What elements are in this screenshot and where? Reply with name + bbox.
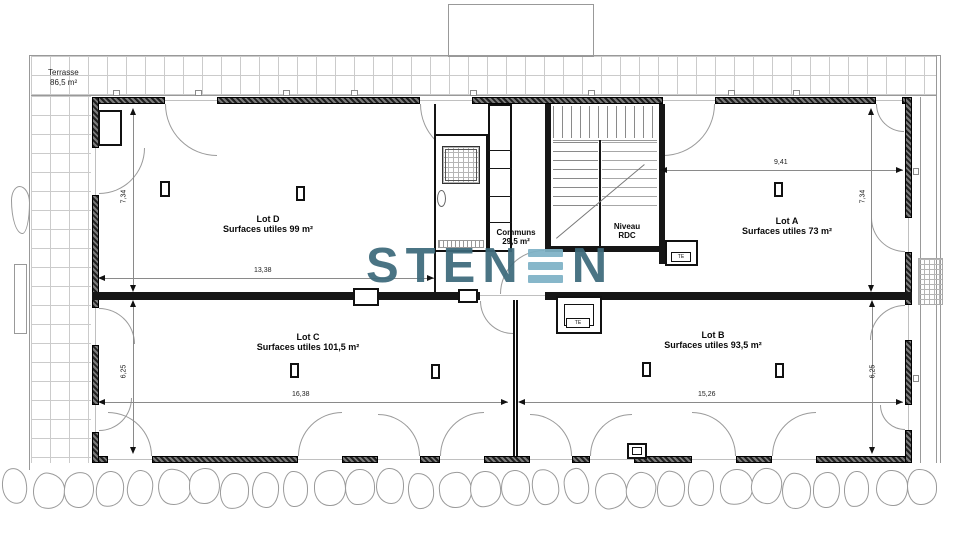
shaft-divider bbox=[488, 222, 512, 223]
level-line1: Niveau bbox=[595, 222, 659, 231]
paving-stone bbox=[875, 470, 908, 507]
door-arc bbox=[99, 308, 135, 344]
paving-stone bbox=[407, 472, 435, 509]
te-box: TE bbox=[671, 252, 691, 262]
sink bbox=[437, 190, 446, 207]
paving-stone bbox=[812, 471, 841, 508]
paving-stone bbox=[376, 468, 405, 505]
communs-label: Communs 29,5 m² bbox=[476, 228, 556, 246]
window-marker bbox=[195, 90, 202, 96]
door-arc bbox=[99, 148, 145, 194]
wall-bottom-6 bbox=[572, 456, 590, 463]
stair-flight-left bbox=[553, 142, 598, 214]
paving-stone bbox=[530, 467, 561, 506]
dim-line-lot-b bbox=[520, 402, 903, 403]
dim-lot-a: 9,41 bbox=[774, 159, 788, 166]
dim-arrow bbox=[869, 300, 875, 307]
dim-arrow bbox=[660, 167, 667, 173]
planter-symbol bbox=[14, 264, 27, 334]
door-arc bbox=[440, 412, 484, 456]
wall-bottom-4 bbox=[420, 456, 440, 463]
wall-top-2 bbox=[217, 97, 420, 104]
wall-bottom-8 bbox=[736, 456, 772, 463]
wall-core-top-link bbox=[434, 104, 436, 134]
outlet-symbol bbox=[642, 362, 651, 377]
dim-arrow bbox=[501, 399, 508, 405]
dim-right-top: 7,34 bbox=[859, 190, 866, 204]
window-marker bbox=[113, 90, 120, 96]
wall-bottom-2 bbox=[152, 456, 298, 463]
paving-stone bbox=[156, 468, 192, 507]
lot-d-label: Lot D Surfaces utiles 99 m² bbox=[188, 214, 348, 234]
wall-left-3 bbox=[92, 345, 99, 405]
door-arc bbox=[870, 305, 905, 340]
paving-stone bbox=[282, 471, 308, 507]
outlet-symbol bbox=[775, 363, 784, 378]
door-arc bbox=[692, 412, 736, 456]
paving-stone bbox=[907, 469, 937, 505]
nested-square-inner bbox=[632, 447, 642, 455]
door-arc bbox=[871, 218, 905, 252]
window-marker bbox=[728, 90, 735, 96]
paving-stone bbox=[844, 471, 870, 508]
wall-middle-left bbox=[92, 292, 480, 300]
level-line2: RDC bbox=[595, 231, 659, 240]
tree-symbol bbox=[11, 186, 30, 234]
paving-stone bbox=[188, 467, 221, 505]
wall-partition-cb bbox=[513, 300, 518, 456]
paving-stone bbox=[125, 469, 155, 508]
dim-arrow bbox=[896, 399, 903, 405]
lot-a-name: Lot A bbox=[707, 216, 867, 226]
dim-left-top: 7,34 bbox=[120, 190, 127, 204]
door-arc bbox=[876, 104, 904, 132]
site-boundary-left bbox=[29, 55, 30, 470]
dim-arrow bbox=[896, 167, 903, 173]
outlet-symbol bbox=[160, 181, 170, 197]
lot-c-area: Surfaces utiles 101,5 m² bbox=[228, 342, 388, 352]
outlet-symbol bbox=[431, 364, 440, 379]
lot-c-name: Lot C bbox=[228, 332, 388, 342]
wall-top-4 bbox=[715, 97, 876, 104]
wall-bottom-5 bbox=[484, 456, 530, 463]
shaft-divider bbox=[488, 150, 512, 151]
shower-inner bbox=[445, 149, 477, 181]
dim-arrow bbox=[518, 399, 525, 405]
dim-line-lot-a bbox=[662, 170, 903, 171]
dim-arrow bbox=[98, 275, 105, 281]
communs-area: 29,5 m² bbox=[476, 237, 556, 246]
lot-a-area: Surfaces utiles 73 m² bbox=[707, 226, 867, 236]
paving-stone bbox=[592, 471, 629, 512]
paving-stone bbox=[31, 471, 68, 512]
terrace-tiles-top bbox=[31, 56, 936, 96]
paving-stones bbox=[0, 462, 960, 536]
dim-arrow bbox=[868, 108, 874, 115]
door-arc bbox=[590, 414, 632, 456]
paving-stone bbox=[94, 469, 126, 508]
dim-arrow bbox=[130, 300, 136, 307]
window-marker bbox=[351, 90, 358, 96]
logo-text-left: STEN bbox=[366, 246, 525, 286]
logo-bar bbox=[528, 262, 563, 270]
dim-right-bottom: 6,25 bbox=[869, 365, 876, 379]
shaft-divider bbox=[488, 196, 512, 197]
floor-plan: Terrasse 86,5 m² bbox=[0, 0, 960, 536]
wall-bottom-3 bbox=[342, 456, 378, 463]
level-label: Niveau RDC bbox=[595, 222, 659, 240]
paving-stone bbox=[781, 472, 812, 510]
window-marker bbox=[913, 375, 919, 382]
paving-stone bbox=[0, 466, 30, 505]
shaft-divider bbox=[488, 168, 512, 169]
paving-stone bbox=[655, 469, 688, 509]
paving-stone bbox=[718, 467, 755, 506]
window-marker bbox=[588, 90, 595, 96]
paving-stone bbox=[345, 469, 376, 506]
paving-stone bbox=[62, 470, 97, 510]
door-arc bbox=[880, 405, 905, 430]
logo-bar bbox=[528, 275, 563, 283]
wall-right-3 bbox=[905, 340, 912, 405]
paving-stone bbox=[561, 466, 591, 505]
paving-stone bbox=[251, 472, 279, 509]
entrance-door-arc bbox=[480, 301, 513, 334]
terrace-edge bbox=[31, 95, 936, 96]
communs-name: Communs bbox=[476, 228, 556, 237]
exterior-grate bbox=[918, 258, 943, 305]
dim-arrow bbox=[130, 108, 136, 115]
window-marker bbox=[470, 90, 477, 96]
lot-b-name: Lot B bbox=[633, 330, 793, 340]
dim-left-bottom: 6,25 bbox=[120, 365, 127, 379]
wall-right-4 bbox=[905, 430, 912, 463]
dim-arrow bbox=[869, 447, 875, 454]
wall-right-1 bbox=[905, 97, 912, 218]
dim-lot-c: 16,38 bbox=[292, 391, 310, 398]
dim-lot-d: 13,38 bbox=[254, 267, 272, 274]
dim-arrow bbox=[98, 399, 105, 405]
terrace-tiles-left bbox=[31, 96, 91, 463]
window-marker bbox=[913, 168, 919, 175]
door-arc bbox=[298, 412, 342, 456]
dim-line-right-top bbox=[871, 110, 872, 290]
dim-arrow bbox=[868, 285, 874, 292]
logo-stylized-e-icon bbox=[528, 248, 563, 284]
terrace-area: 86,5 m² bbox=[50, 78, 77, 87]
paving-stone bbox=[499, 469, 532, 508]
te-box: TE bbox=[566, 318, 590, 328]
paving-stone bbox=[219, 472, 250, 509]
lot-a-label: Lot A Surfaces utiles 73 m² bbox=[707, 216, 867, 236]
stair-landing-line bbox=[553, 140, 657, 141]
wall-top-3 bbox=[472, 97, 663, 104]
wall-left-4 bbox=[92, 432, 99, 463]
stair-flight-top bbox=[553, 106, 657, 138]
lot-b-label: Lot B Surfaces utiles 93,5 m² bbox=[633, 330, 793, 350]
outlet-symbol bbox=[774, 182, 783, 197]
paving-stone bbox=[686, 469, 716, 508]
corner-duct bbox=[98, 110, 122, 146]
stenen-logo: STEN N bbox=[366, 244, 614, 288]
dim-line-left-top bbox=[133, 110, 134, 290]
roof-bump-outline bbox=[448, 4, 594, 57]
door-arc bbox=[165, 104, 217, 156]
lot-b-area: Surfaces utiles 93,5 m² bbox=[633, 340, 793, 350]
outlet-symbol bbox=[296, 186, 305, 201]
paving-stone bbox=[749, 467, 783, 506]
lot-d-area: Surfaces utiles 99 m² bbox=[188, 224, 348, 234]
outlet-symbol bbox=[290, 363, 299, 378]
dim-lot-b: 15,26 bbox=[698, 391, 716, 398]
door-arc bbox=[772, 412, 816, 456]
door-arc bbox=[378, 414, 420, 456]
terrace-label: Terrasse bbox=[48, 68, 79, 77]
logo-bar bbox=[528, 249, 563, 257]
stair-flight-right bbox=[602, 142, 657, 214]
paving-stone bbox=[623, 470, 658, 510]
dim-arrow bbox=[130, 285, 136, 292]
lot-c-label: Lot C Surfaces utiles 101,5 m² bbox=[228, 332, 388, 352]
door-arc bbox=[530, 414, 572, 456]
dim-arrow bbox=[130, 447, 136, 454]
door-arc bbox=[663, 104, 715, 156]
logo-text-right: N bbox=[572, 246, 614, 286]
wall-top-1 bbox=[92, 97, 165, 104]
paving-stone bbox=[468, 470, 502, 509]
dim-line-lot-c bbox=[100, 402, 508, 403]
window-marker bbox=[283, 90, 290, 96]
window-marker bbox=[793, 90, 800, 96]
wall-bottom-9 bbox=[816, 456, 912, 463]
paving-stone bbox=[438, 471, 473, 509]
dim-line-left-bottom bbox=[133, 302, 134, 452]
lot-d-name: Lot D bbox=[188, 214, 348, 224]
paving-stone bbox=[314, 470, 346, 506]
